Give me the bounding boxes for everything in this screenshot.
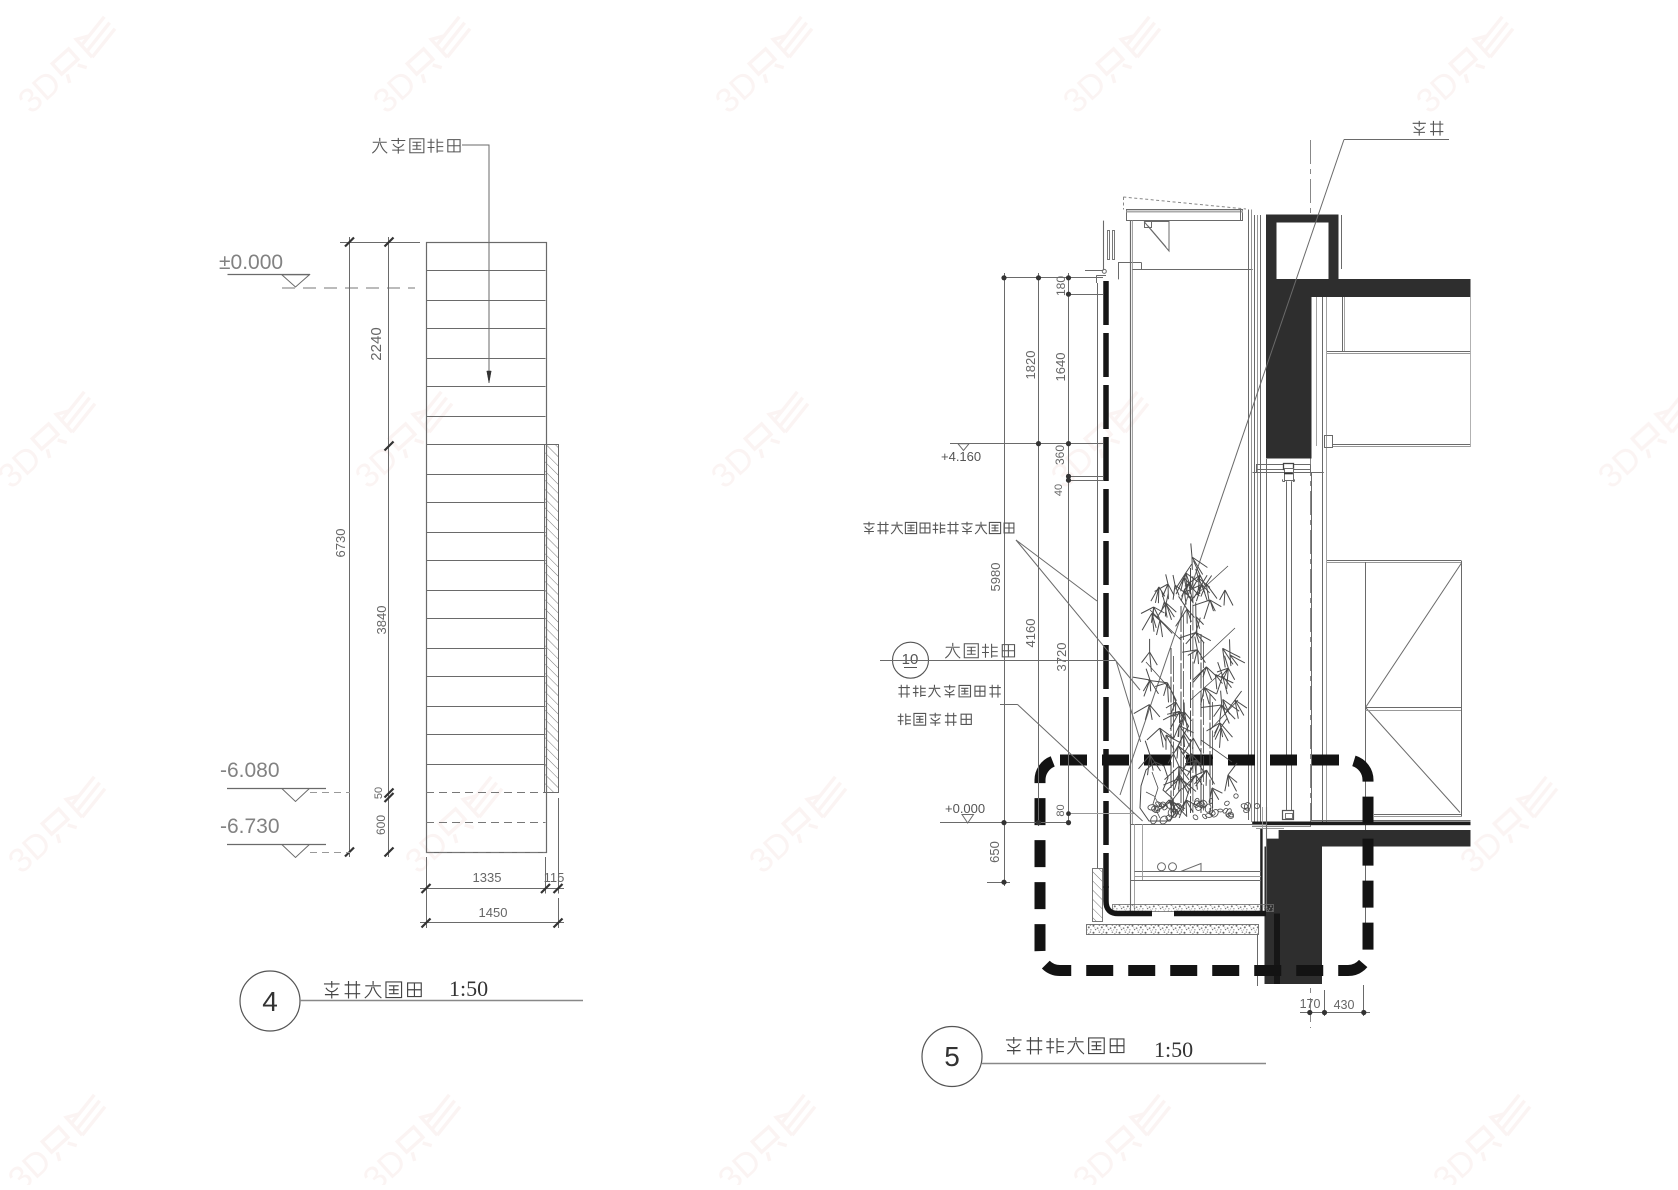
svg-text:180: 180 (1054, 276, 1068, 296)
svg-text:±0.000: ±0.000 (219, 251, 283, 274)
svg-text:1640: 1640 (1053, 353, 1068, 382)
svg-text:4: 4 (262, 986, 278, 1017)
svg-text:430: 430 (1334, 998, 1355, 1012)
svg-text:600: 600 (374, 815, 388, 835)
svg-text:1:50: 1:50 (449, 976, 488, 1001)
svg-text:5: 5 (944, 1041, 960, 1072)
svg-text:6730: 6730 (333, 529, 348, 558)
svg-text:3840: 3840 (374, 606, 389, 635)
svg-text:10: 10 (902, 651, 919, 668)
svg-text:1820: 1820 (1023, 351, 1038, 380)
svg-text:3720: 3720 (1054, 643, 1069, 672)
svg-text:80: 80 (1055, 804, 1067, 816)
svg-text:+4.160: +4.160 (941, 449, 981, 464)
svg-text:+0.000: +0.000 (945, 801, 985, 816)
svg-text:170: 170 (1300, 997, 1321, 1011)
svg-text:1335: 1335 (473, 870, 502, 885)
svg-text:40: 40 (1053, 484, 1065, 496)
svg-text:2240: 2240 (368, 327, 385, 360)
svg-text:4160: 4160 (1023, 619, 1038, 648)
svg-text:360: 360 (1053, 445, 1067, 465)
svg-text:1450: 1450 (479, 905, 508, 920)
svg-text:-6.730: -6.730 (220, 815, 280, 838)
svg-text:-6.080: -6.080 (220, 759, 280, 782)
svg-text:115: 115 (544, 870, 565, 885)
svg-text:650: 650 (987, 841, 1002, 863)
svg-text:5980: 5980 (988, 563, 1003, 592)
svg-text:1:50: 1:50 (1154, 1037, 1193, 1062)
svg-text:50: 50 (373, 787, 385, 799)
